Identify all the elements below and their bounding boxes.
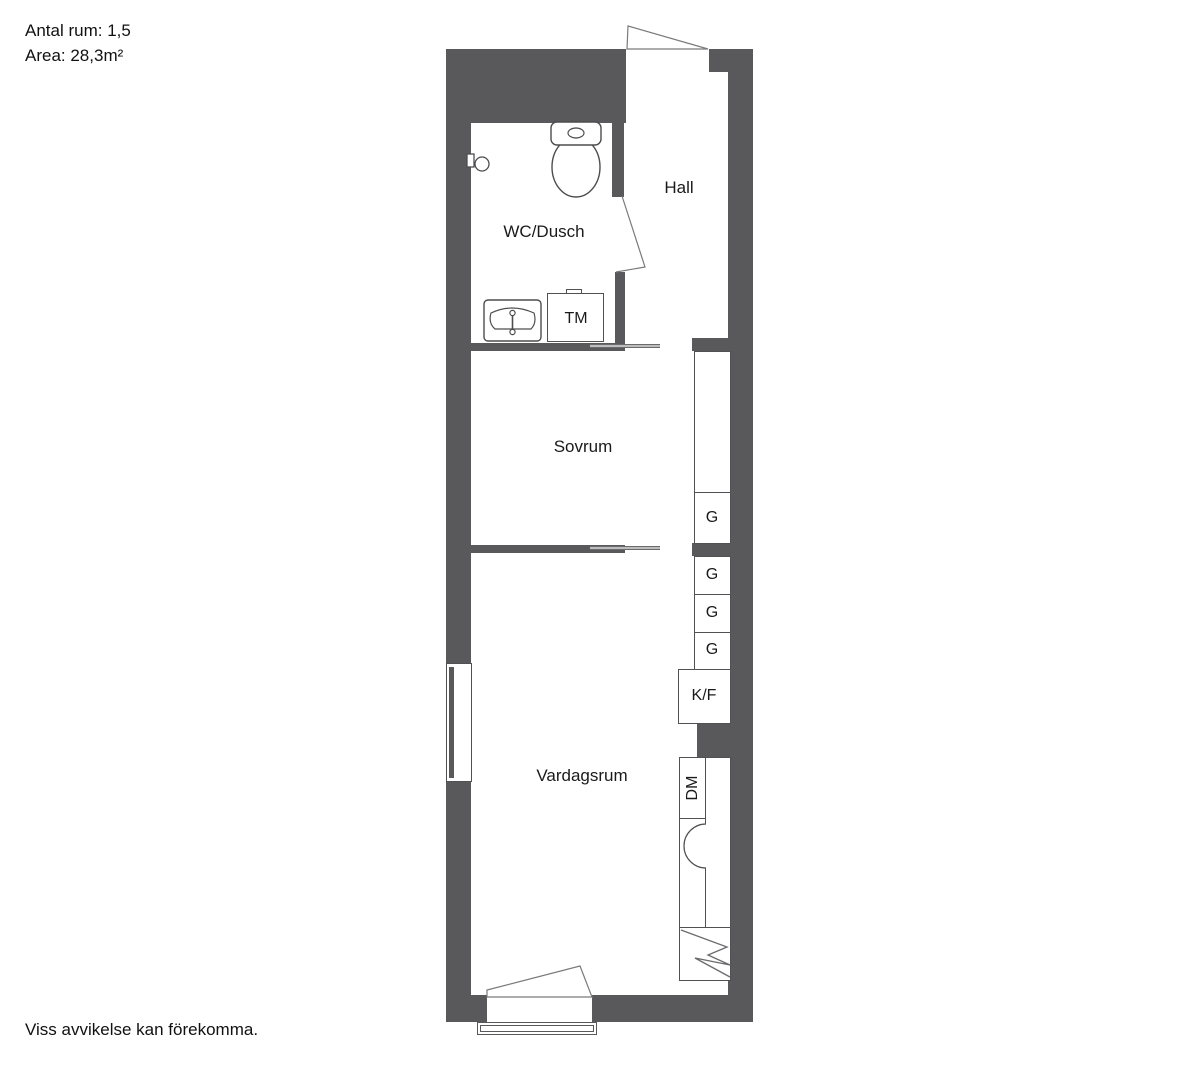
wall-kitchen-jog: [697, 723, 753, 757]
entry-door-swing-icon: [620, 20, 720, 54]
fridge-freezer-label: K/F: [692, 687, 717, 705]
wall-wc-right-upper: [612, 123, 624, 197]
wall-closet-top: [692, 338, 730, 351]
disclaimer-text: Viss avvikelse kan förekomma.: [25, 1020, 258, 1040]
kitchen-sink-icon: [681, 822, 707, 870]
closet-g3-label: G: [706, 604, 718, 622]
wc-door-swing-icon: [610, 193, 652, 277]
area-label: Area: 28,3m²: [25, 43, 131, 68]
closet-g4-label: G: [706, 641, 718, 659]
rooms-count-label: Antal rum: 1,5: [25, 18, 131, 43]
closet-g1-label: G: [706, 509, 718, 527]
room-label-hall: Hall: [664, 178, 693, 198]
room-label-bedroom: Sovrum: [554, 437, 613, 457]
wall-left-lower: [446, 782, 471, 1022]
closet-g2-label: G: [706, 566, 718, 584]
dishwasher-label: DM: [684, 776, 702, 801]
window-frame-line: [449, 667, 454, 778]
room-label-wc: WC/Dusch: [503, 222, 584, 242]
sliding-door-bedroom-living: [590, 546, 660, 550]
dishwasher-divider: [679, 818, 706, 819]
washing-machine-handle: [566, 289, 582, 294]
wall-closet-mid: [692, 543, 730, 556]
floor-plan: Antal rum: 1,5 Area: 28,3m²: [0, 0, 1200, 1066]
sliding-door-hall-bedroom: [590, 344, 660, 348]
sink-icon: [483, 299, 543, 343]
washing-machine-label: TM: [564, 310, 587, 328]
room-label-living: Vardagsrum: [536, 766, 627, 786]
stove-icon: [679, 927, 731, 980]
wall-right: [728, 72, 753, 1022]
wall-bottom-right: [592, 995, 753, 1022]
closet-tall: [694, 351, 731, 493]
wall-left-upper: [446, 123, 471, 665]
toilet-icon: [548, 120, 604, 200]
wall-wc-right-lower: [615, 272, 625, 343]
balcony-door-swing-icon: [480, 960, 598, 1002]
balcony-railing-inner: [480, 1025, 594, 1032]
plan-header: Antal rum: 1,5 Area: 28,3m²: [25, 18, 131, 68]
wall-top-slab: [446, 49, 626, 123]
shower-mixer-icon: [466, 148, 492, 176]
